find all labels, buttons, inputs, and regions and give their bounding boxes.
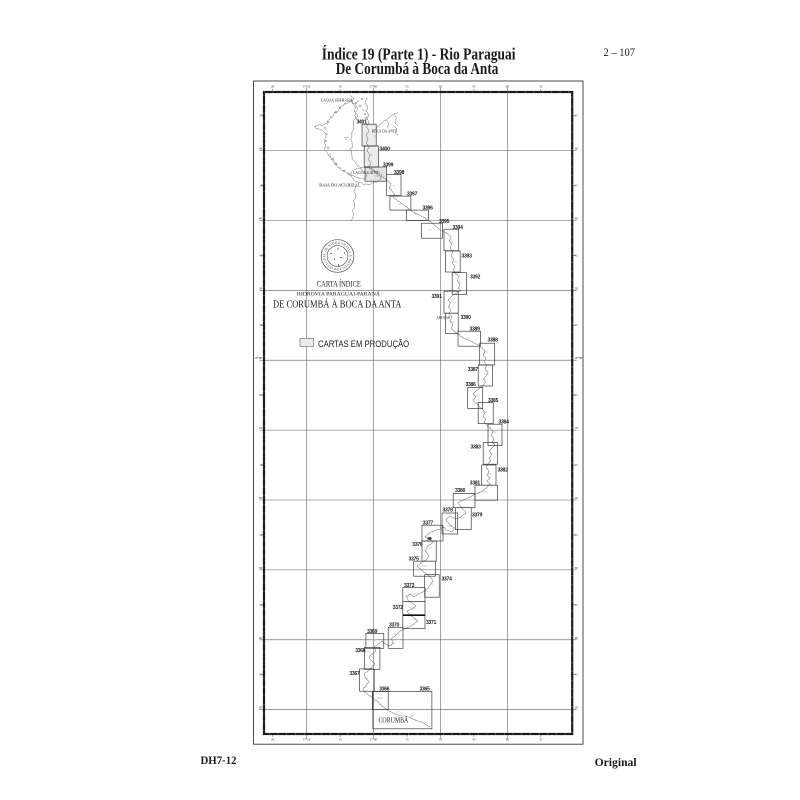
svg-text:35: 35: [539, 85, 543, 89]
svg-text:3383: 3383: [471, 444, 482, 450]
svg-text:3365: 3365: [420, 686, 431, 692]
svg-text:10': 10': [259, 426, 263, 430]
svg-text:20': 20': [575, 496, 579, 500]
svg-text:55: 55: [575, 323, 579, 327]
svg-text:CARTA ÍNDICE: CARTA ÍNDICE: [317, 278, 361, 288]
svg-text:40': 40': [506, 85, 510, 89]
svg-text:45: 45: [575, 253, 579, 257]
svg-text:3389: 3389: [470, 326, 481, 332]
svg-text:3367: 3367: [349, 671, 360, 677]
svg-text:50': 50': [259, 286, 263, 290]
svg-text:45: 45: [259, 673, 263, 677]
svg-text:20': 20': [259, 496, 263, 500]
svg-text:45: 45: [575, 673, 579, 677]
svg-text:3372: 3372: [393, 605, 404, 611]
svg-text:3368: 3368: [355, 648, 366, 654]
svg-text:De Corumbá à Boca da Anta: De Corumbá à Boca da Anta: [336, 59, 499, 78]
svg-text:DH7-12: DH7-12: [201, 753, 237, 767]
svg-text:3398: 3398: [394, 170, 405, 176]
svg-text:3387: 3387: [468, 367, 479, 373]
svg-text:50': 50': [575, 286, 579, 290]
svg-text:3390: 3390: [461, 315, 472, 321]
svg-text:35: 35: [539, 738, 543, 742]
svg-text:3399: 3399: [383, 162, 394, 168]
svg-text:3393: 3393: [462, 253, 473, 259]
svg-text:3395: 3395: [439, 219, 450, 225]
svg-text:3378: 3378: [443, 508, 454, 514]
svg-text:3394: 3394: [453, 225, 464, 231]
svg-text:Original: Original: [595, 755, 638, 769]
svg-text:3397: 3397: [407, 192, 418, 198]
svg-text:25: 25: [575, 533, 579, 537]
svg-text:3376: 3376: [412, 542, 423, 548]
svg-text:30': 30': [259, 566, 263, 570]
svg-text:55: 55: [259, 323, 263, 327]
svg-text:LAGOA UBERABA: LAGOA UBERABA: [321, 98, 353, 103]
svg-text:3386: 3386: [466, 382, 477, 388]
svg-text:40': 40': [506, 738, 510, 742]
svg-text:40': 40': [259, 636, 263, 640]
svg-text:LAGOA GAÍVA: LAGOA GAÍVA: [353, 170, 379, 175]
svg-text:18°00': 18°00': [575, 356, 583, 360]
svg-text:3375: 3375: [409, 557, 420, 563]
svg-text:3401: 3401: [357, 120, 368, 126]
svg-text:05: 05: [575, 393, 579, 397]
svg-text:57°10': 57°10': [303, 738, 311, 742]
svg-text:45: 45: [472, 738, 476, 742]
svg-text:40': 40': [575, 216, 579, 220]
svg-text:3392: 3392: [470, 274, 481, 280]
svg-text:BAIA DO ACURIZAL: BAIA DO ACURIZAL: [319, 182, 360, 187]
svg-text:45: 45: [259, 253, 263, 257]
svg-text:3400: 3400: [380, 147, 391, 153]
svg-text:55: 55: [405, 738, 409, 742]
svg-text:25: 25: [575, 114, 579, 118]
svg-text:3385: 3385: [488, 398, 499, 404]
svg-text:50': 50': [259, 706, 263, 710]
svg-text:3384: 3384: [499, 419, 510, 425]
svg-text:2 – 107: 2 – 107: [604, 45, 636, 59]
svg-text:35: 35: [575, 603, 579, 607]
svg-text:3373: 3373: [404, 583, 415, 589]
svg-text:10': 10': [575, 426, 579, 430]
svg-text:10: 10: [339, 738, 343, 742]
svg-text:3380: 3380: [455, 488, 466, 494]
svg-text:20: 20: [271, 738, 275, 742]
svg-text:18°00': 18°00': [255, 356, 263, 360]
svg-text:25: 25: [259, 114, 263, 118]
svg-text:3377: 3377: [423, 521, 434, 527]
svg-text:57°00': 57°00': [370, 85, 378, 89]
svg-text:3374: 3374: [442, 577, 453, 583]
svg-text:40': 40': [259, 216, 263, 220]
svg-text:15: 15: [575, 463, 579, 467]
svg-text:BOCA DA ANTA: BOCA DA ANTA: [372, 128, 398, 133]
svg-text:35: 35: [259, 183, 263, 187]
svg-text:20: 20: [271, 85, 275, 89]
svg-text:AMOLAR: AMOLAR: [437, 315, 451, 320]
svg-text:3379: 3379: [472, 512, 483, 518]
svg-text:40': 40': [575, 636, 579, 640]
svg-text:25: 25: [259, 533, 263, 537]
svg-text:57°00': 57°00': [370, 738, 378, 742]
svg-text:3396: 3396: [423, 206, 434, 212]
svg-text:CARTAS EM PRODUÇÃO: CARTAS EM PRODUÇÃO: [318, 339, 409, 349]
svg-text:45: 45: [472, 85, 476, 89]
svg-text:50': 50': [439, 85, 443, 89]
svg-text:50': 50': [439, 738, 443, 742]
svg-text:3388: 3388: [488, 338, 499, 344]
svg-text:DE CORUMBÁ À BOCA DA ANTA: DE CORUMBÁ À BOCA DA ANTA: [273, 298, 401, 310]
svg-text:50': 50': [575, 706, 579, 710]
svg-text:•DIRETORIA DE HIDROGRAFIA E NA: •DIRETORIA DE HIDROGRAFIA E NAVEGAÇÃO•BR…: [0, 0, 353, 271]
svg-text:55: 55: [405, 85, 409, 89]
svg-text:3369: 3369: [367, 629, 378, 635]
svg-text:3391: 3391: [432, 294, 443, 300]
svg-text:3382: 3382: [498, 468, 509, 474]
svg-text:57°10': 57°10': [303, 85, 311, 89]
svg-text:35: 35: [259, 603, 263, 607]
svg-text:35: 35: [575, 183, 579, 187]
svg-text:30': 30': [259, 147, 263, 151]
svg-text:05: 05: [259, 393, 263, 397]
svg-text:3381: 3381: [470, 481, 481, 487]
svg-text:30': 30': [575, 147, 579, 151]
svg-text:10: 10: [339, 85, 343, 89]
svg-text:15: 15: [259, 463, 263, 467]
svg-text:3366: 3366: [379, 687, 390, 693]
svg-text:3371: 3371: [426, 620, 437, 626]
svg-text:3370: 3370: [389, 623, 400, 629]
svg-text:30': 30': [575, 566, 579, 570]
svg-text:CORUMBÁ: CORUMBÁ: [379, 715, 409, 725]
svg-text:HIDROVIA PARAGUAI-PARANÁ: HIDROVIA PARAGUAI-PARANÁ: [297, 289, 380, 297]
